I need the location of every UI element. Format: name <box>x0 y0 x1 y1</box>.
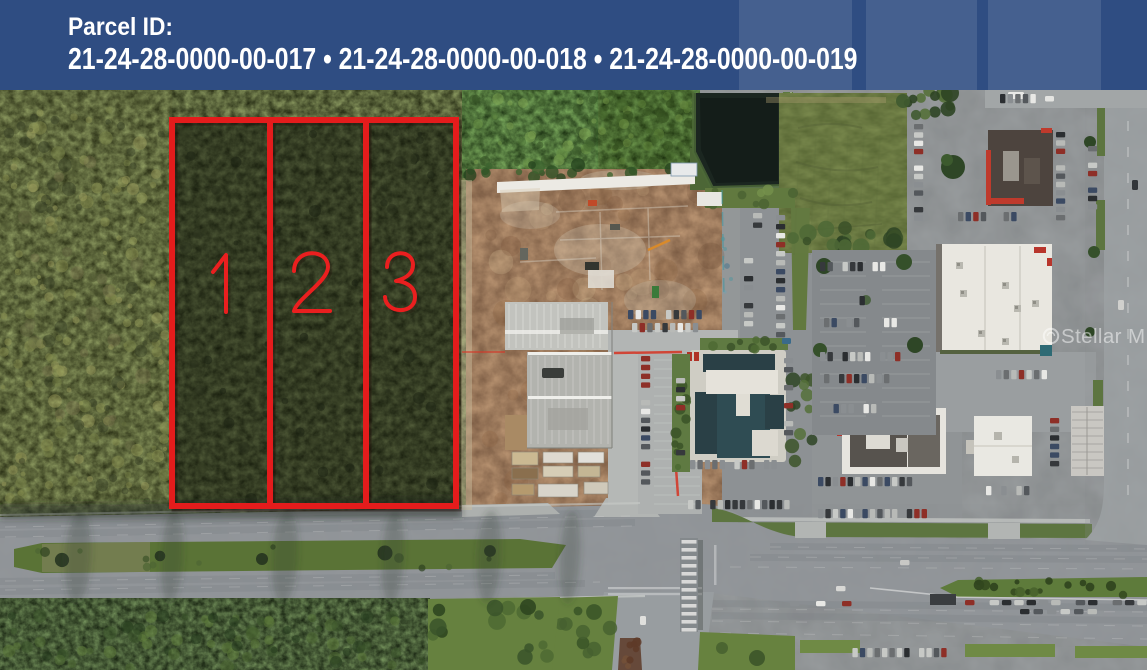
svg-text:Stellar MLS: Stellar MLS <box>1061 325 1147 348</box>
